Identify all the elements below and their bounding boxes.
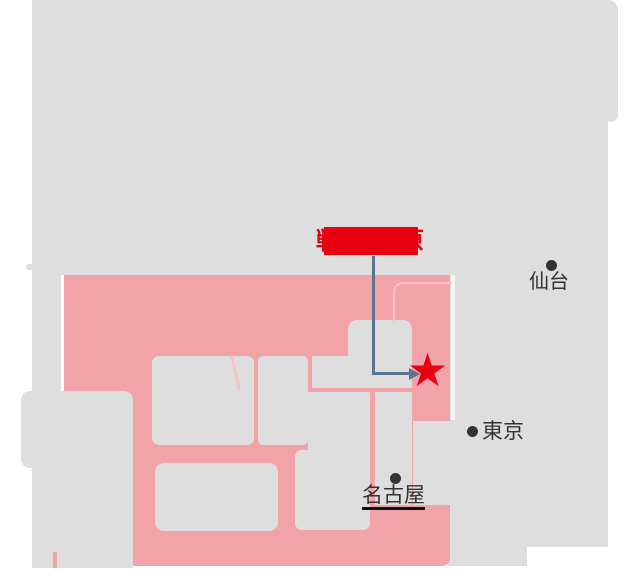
- boundary-tick-bottomleft: [53, 552, 57, 568]
- prefecture-hole-b3: [308, 392, 348, 450]
- city-label-tokyo: 東京: [482, 421, 524, 442]
- prefecture-hole-b1: [258, 356, 308, 445]
- japan-map: ★ 戦場ヶ原 仙台 東京 名古屋: [0, 0, 640, 576]
- boundary-corner-light: [393, 282, 452, 322]
- map-base-left-tick: [26, 264, 34, 270]
- separator-left: [61, 275, 64, 391]
- map-base-right-extension: [596, 0, 618, 122]
- city-label-sendai: 仙台: [529, 271, 569, 291]
- prefecture-hole-b2: [312, 356, 348, 388]
- redaction-box: [324, 227, 418, 255]
- prefecture-hole-elbow: [348, 320, 412, 388]
- prefecture-hole-west-bulge: [21, 391, 133, 468]
- star-marker-icon: ★: [407, 347, 448, 393]
- leader-line-vertical: [372, 256, 375, 375]
- prefecture-hole-west-lower: [32, 460, 133, 568]
- prefecture-hole-c: [155, 463, 278, 531]
- prefecture-hole-a: [152, 356, 254, 445]
- city-label-nagoya: 名古屋: [362, 485, 425, 510]
- map-base-bottommid-extension: [447, 540, 527, 566]
- leader-line-horizontal: [372, 372, 411, 375]
- city-dot-tokyo: [467, 426, 478, 437]
